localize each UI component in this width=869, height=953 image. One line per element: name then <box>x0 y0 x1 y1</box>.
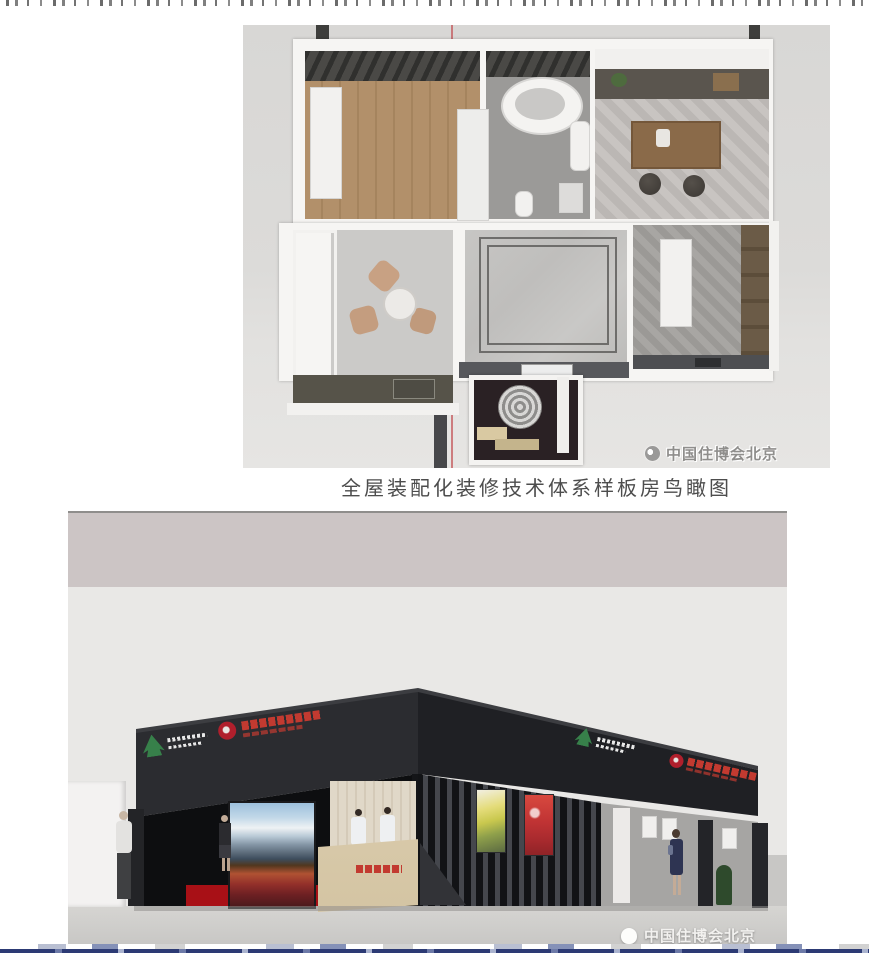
side-low-wall <box>768 855 787 906</box>
visitor-woman-walking <box>218 815 232 871</box>
logo-tagline <box>168 741 202 749</box>
article-page: 中国住博会北京 全屋装配化装修技术体系样板房鸟瞰图 <box>0 0 869 953</box>
watermark-text: 中国住博会北京 <box>666 443 778 464</box>
toilet <box>515 191 533 217</box>
visitor-man <box>114 811 134 905</box>
backdrop-band <box>68 513 787 587</box>
poster-red <box>524 794 554 856</box>
green-emblem-icon <box>140 733 165 758</box>
led-screen-cityscape <box>228 801 316 909</box>
vestibule-wall <box>557 377 569 453</box>
wood-wardrobe <box>741 225 769 355</box>
white-door-panel <box>613 808 630 903</box>
table-items <box>656 129 670 147</box>
bathtub-basin <box>515 88 565 120</box>
clipped-text-line <box>6 0 863 6</box>
expo-logo-icon <box>645 446 660 461</box>
hall-floor-inlay <box>487 245 609 345</box>
sink <box>570 121 590 171</box>
stool <box>639 173 661 195</box>
study-hatch <box>695 358 721 367</box>
red-emblem-icon <box>668 753 685 770</box>
red-emblem-icon <box>217 720 237 740</box>
living-window <box>293 230 337 386</box>
poster-yellow <box>476 789 506 853</box>
dining-shelf <box>595 49 769 70</box>
watermark: 中国住博会北京 <box>621 925 756 946</box>
right-outer-wall <box>769 221 779 371</box>
dining-table <box>631 121 721 169</box>
floor-plan-image[interactable]: 中国住博会北京 <box>243 25 830 468</box>
washer <box>559 183 583 213</box>
coffee-table <box>383 287 417 321</box>
plant <box>716 865 732 905</box>
living-outer-wall <box>287 403 459 415</box>
green-emblem-icon <box>574 726 596 748</box>
clipped-figure-border <box>0 949 869 953</box>
step <box>495 439 539 450</box>
counter-box <box>713 73 739 91</box>
booth-image[interactable]: 中国住博会北京 <box>68 511 787 950</box>
wall-pillar <box>698 820 713 906</box>
bath-cabinet <box>457 109 489 221</box>
next-figure-clipped-edge <box>0 944 869 953</box>
framed-picture <box>722 828 737 849</box>
balcony-hatch <box>393 379 435 399</box>
plant <box>611 73 627 87</box>
bathroom-ceiling <box>486 51 590 77</box>
expo-logo-icon <box>621 928 637 944</box>
framed-picture <box>642 816 657 838</box>
bed <box>310 87 342 199</box>
desk-brand-logo <box>356 865 402 873</box>
watermark-text: 中国住博会北京 <box>644 925 756 946</box>
bedroom-ceiling-beams <box>305 51 480 81</box>
stool <box>683 175 705 197</box>
round-rug <box>498 385 542 429</box>
booth-floor-shadow <box>134 906 768 911</box>
watermark: 中国住博会北京 <box>645 443 778 464</box>
figure-caption: 全屋装配化装修技术体系样板房鸟瞰图 <box>243 472 830 501</box>
visitor-woman-right <box>668 829 684 905</box>
right-edge-column <box>752 823 768 908</box>
background-column <box>434 411 447 468</box>
rug <box>660 239 692 327</box>
